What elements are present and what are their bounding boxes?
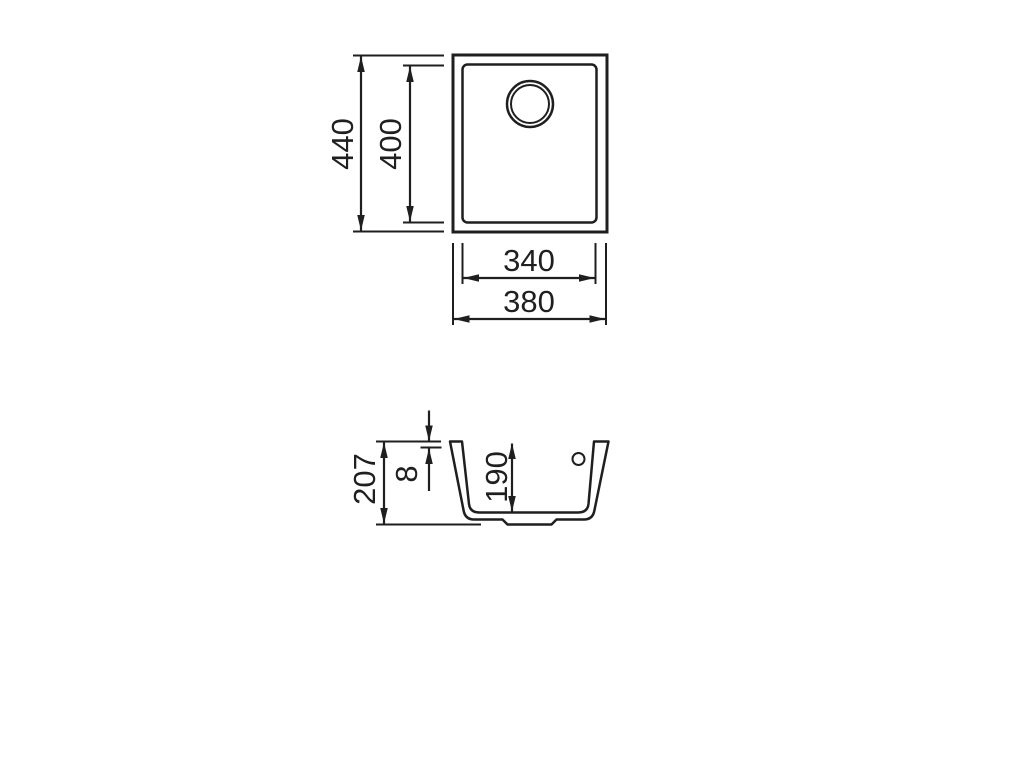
drawing-canvas: 440 400 340 380 — [0, 0, 1024, 768]
overflow-hole — [573, 453, 585, 465]
dim-bowl-depth: 190 — [479, 444, 514, 512]
dim-bowl-width: 340 — [463, 243, 596, 284]
plan-bowl-rect — [463, 65, 597, 223]
drain-hole-outer — [507, 81, 553, 127]
drain-hole-inner — [511, 85, 549, 123]
section-profile — [450, 442, 609, 525]
plan-view: 440 400 340 380 — [325, 55, 607, 325]
technical-drawing: 440 400 340 380 — [0, 0, 1024, 768]
dim-label-overall-depth: 207 — [347, 453, 382, 505]
dim-label-overall-width: 380 — [503, 284, 555, 319]
section-view: 207 8 190 — [347, 411, 609, 525]
dim-label-bowl-depth: 190 — [479, 451, 514, 503]
dim-label-overall-height: 440 — [325, 118, 360, 170]
dim-bowl-height: 400 — [373, 66, 444, 223]
dim-label-bowl-width: 340 — [503, 243, 555, 278]
dim-label-rim-height: 8 — [389, 465, 424, 482]
dim-rim-height: 8 — [389, 411, 442, 492]
dim-label-bowl-height: 400 — [373, 118, 408, 170]
